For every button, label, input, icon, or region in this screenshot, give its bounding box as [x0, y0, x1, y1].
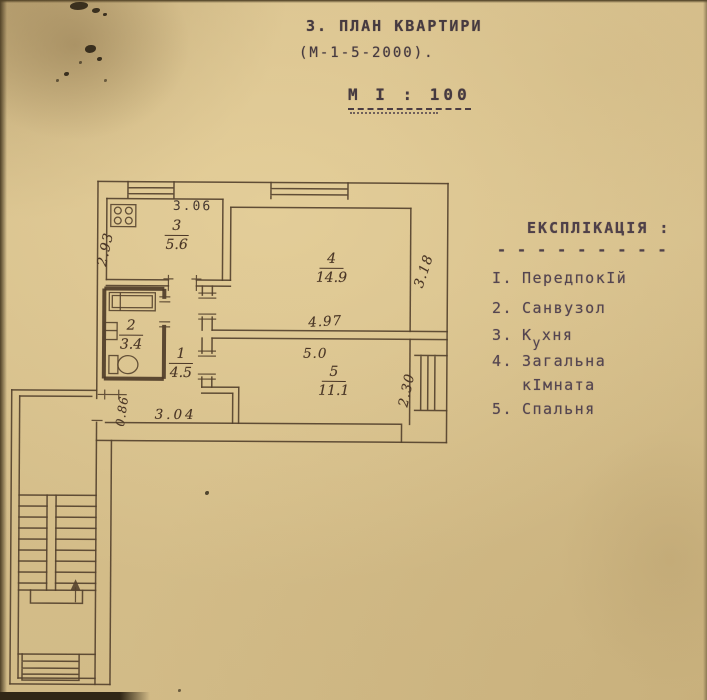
bedroom-window — [415, 355, 447, 410]
room-label-kitchen: 3 5.6 — [155, 219, 199, 253]
living-window — [271, 182, 348, 198]
kitchen-door — [163, 275, 201, 291]
dim-hall-width: 3.04 — [155, 407, 197, 423]
room-label-living: 4 14.9 — [303, 252, 359, 286]
scanned-page: 3. ПЛАН КВАРТИРИ (М-1-5-2000). М І : 100… — [0, 0, 707, 700]
living-door — [198, 293, 216, 319]
kitchen-window — [128, 182, 174, 198]
room-label-bathroom: 2 3.4 — [111, 319, 151, 353]
room-label-hallway: 1 4.5 — [159, 347, 203, 381]
floor-plan-svg — [0, 0, 707, 700]
bedroom-walls — [105, 337, 410, 442]
bathroom-door — [159, 297, 170, 327]
dim-kitchen-width: 3.06 — [173, 199, 212, 214]
bathtub-icon — [109, 293, 155, 311]
dim-living-width: 4.97 — [308, 313, 343, 331]
toilet-icon — [109, 356, 138, 374]
room-divider-wall — [212, 330, 447, 339]
floor-plan: 3 5.6 4 14.9 2 3.4 1 4.5 5 11.1 3.06 2.9… — [0, 0, 707, 700]
room-label-bedroom: 5 11.1 — [308, 365, 360, 399]
outer-walls — [95, 181, 448, 686]
dim-bedroom-width: 5.0 — [303, 346, 328, 362]
